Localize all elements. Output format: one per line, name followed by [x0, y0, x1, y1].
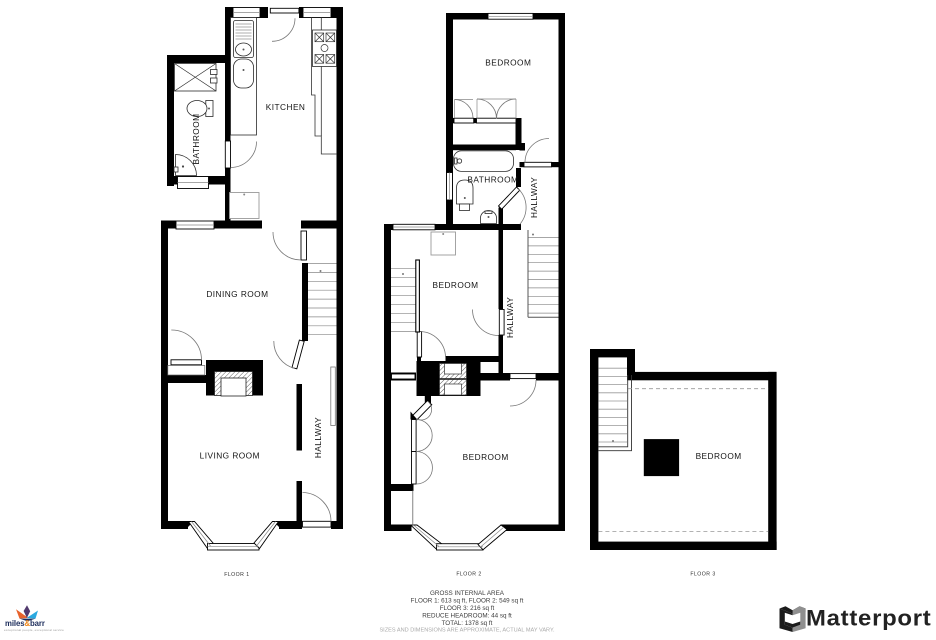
svg-text:FLOOR 1: FLOOR 1 [224, 572, 249, 578]
svg-text:FLOOR 3: 216 sq ft: FLOOR 3: 216 sq ft [440, 605, 495, 612]
svg-text:FLOOR 3: FLOOR 3 [690, 572, 715, 578]
svg-text:FLOOR 1: 613 sq ft, FLOOR 2: 5: FLOOR 1: 613 sq ft, FLOOR 2: 549 sq ft [411, 598, 524, 605]
svg-text:HALLWAY: HALLWAY [505, 297, 515, 338]
svg-text:TOTAL: 1378 sq ft: TOTAL: 1378 sq ft [442, 620, 493, 627]
svg-text:miles&barr: miles&barr [5, 619, 45, 628]
svg-text:BEDROOM: BEDROOM [463, 452, 509, 462]
svg-text:BEDROOM: BEDROOM [485, 58, 531, 68]
svg-text:LIVING ROOM: LIVING ROOM [200, 450, 260, 460]
svg-text:exceptional people, exceptiona: exceptional people, exceptional service [4, 628, 64, 632]
svg-text:REDUCE HEADROOM: 44 sq ft: REDUCE HEADROOM: 44 sq ft [422, 613, 512, 620]
svg-text:BEDROOM: BEDROOM [432, 280, 478, 290]
svg-text:DINING ROOM: DINING ROOM [206, 289, 268, 299]
svg-text:HALLWAY: HALLWAY [313, 417, 323, 458]
svg-text:BATHROOM: BATHROOM [467, 175, 518, 185]
svg-text:BEDROOM: BEDROOM [696, 451, 742, 461]
svg-text:FLOOR 2: FLOOR 2 [456, 572, 481, 578]
svg-text:KITCHEN: KITCHEN [266, 102, 306, 112]
svg-text:Matterport: Matterport [806, 606, 932, 631]
svg-text:BATHROOM: BATHROOM [191, 114, 201, 165]
svg-text:SIZES AND DIMENSIONS ARE APPRO: SIZES AND DIMENSIONS ARE APPROXIMATE, AC… [379, 628, 555, 634]
svg-text:HALLWAY: HALLWAY [529, 177, 539, 218]
svg-text:GROSS INTERNAL AREA: GROSS INTERNAL AREA [430, 590, 505, 597]
